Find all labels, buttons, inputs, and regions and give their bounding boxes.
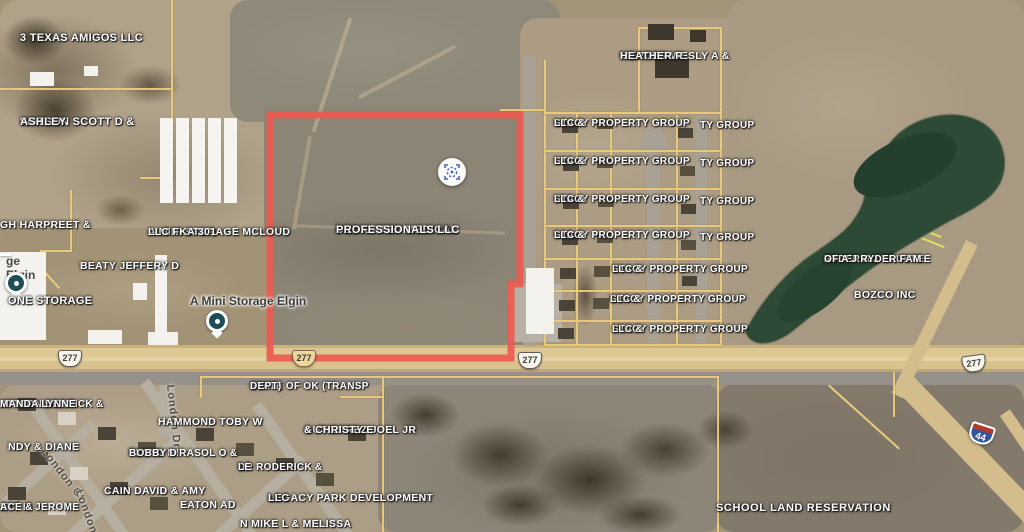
label-line: LLC & xyxy=(612,264,643,277)
label-line: SCHOOL LAND RESERVATION xyxy=(716,502,891,516)
map-pin-icon[interactable] xyxy=(5,272,27,294)
label-line: LEGACY PARK DEVELOPMENT xyxy=(268,492,433,505)
label-line: PROFESSIONALS LLC xyxy=(336,224,460,238)
label-line: TY GROUP xyxy=(700,232,754,245)
label-line: GH HARPREET & xyxy=(0,219,91,232)
label-line: BEATY JEFFERY D xyxy=(80,260,179,273)
place-label-text: A Mini Storage Elgin xyxy=(190,294,306,308)
label-line: LE xyxy=(238,462,251,475)
label-line: HEATHER R xyxy=(620,50,683,63)
label-line: TY GROUP xyxy=(700,120,754,133)
label-line: LLC & xyxy=(554,230,585,243)
label-line: LLC FKA 301 xyxy=(148,226,216,239)
label-line: BOZCO INC xyxy=(854,289,916,302)
label-line: LLC & xyxy=(554,194,585,207)
label-line: MANDA LYNNE xyxy=(0,399,76,412)
label-line: N MIKE L & MELISSA xyxy=(240,518,351,531)
label-line: LLC & xyxy=(610,294,641,307)
label-line: DEPT) xyxy=(250,381,282,394)
label-line: HAMMOND TOBY W xyxy=(158,416,263,429)
place-label-storage-elgin[interactable]: ge Elgin xyxy=(0,253,12,256)
map-pin-icon[interactable] xyxy=(206,310,228,332)
label-line: BOBBY D xyxy=(129,448,177,461)
label-line: TY GROUP xyxy=(700,196,754,209)
selected-parcel-marker[interactable] xyxy=(438,158,466,186)
label-line: OF A J RYDER FAM xyxy=(824,254,922,267)
label-line: & CHRISTY E xyxy=(304,424,374,437)
pin-dot xyxy=(14,281,19,286)
scan-focus-icon xyxy=(443,163,461,181)
label-line: ASHLEY xyxy=(20,116,66,130)
label-line: 3 TEXAS AMIGOS LLC xyxy=(20,32,143,46)
label-line: EATON AD xyxy=(180,499,236,512)
label-line: TY GROUP xyxy=(700,158,754,171)
label-line: LLC & xyxy=(554,118,585,131)
label-line: NDY & DIANE xyxy=(8,441,79,454)
satellite-map[interactable]: ge Elgin A Mini Storage Elgin London Dr … xyxy=(0,0,1024,532)
label-line: ONE STORAGE xyxy=(8,295,92,309)
label-line: LLC & xyxy=(554,156,585,169)
label-line: CAIN DAVID & AMY xyxy=(104,485,206,498)
label-line: LLC xyxy=(268,492,289,505)
pin-dot xyxy=(215,319,220,324)
label-line: LLC & xyxy=(612,324,643,337)
label-line: ACE & xyxy=(0,502,33,515)
